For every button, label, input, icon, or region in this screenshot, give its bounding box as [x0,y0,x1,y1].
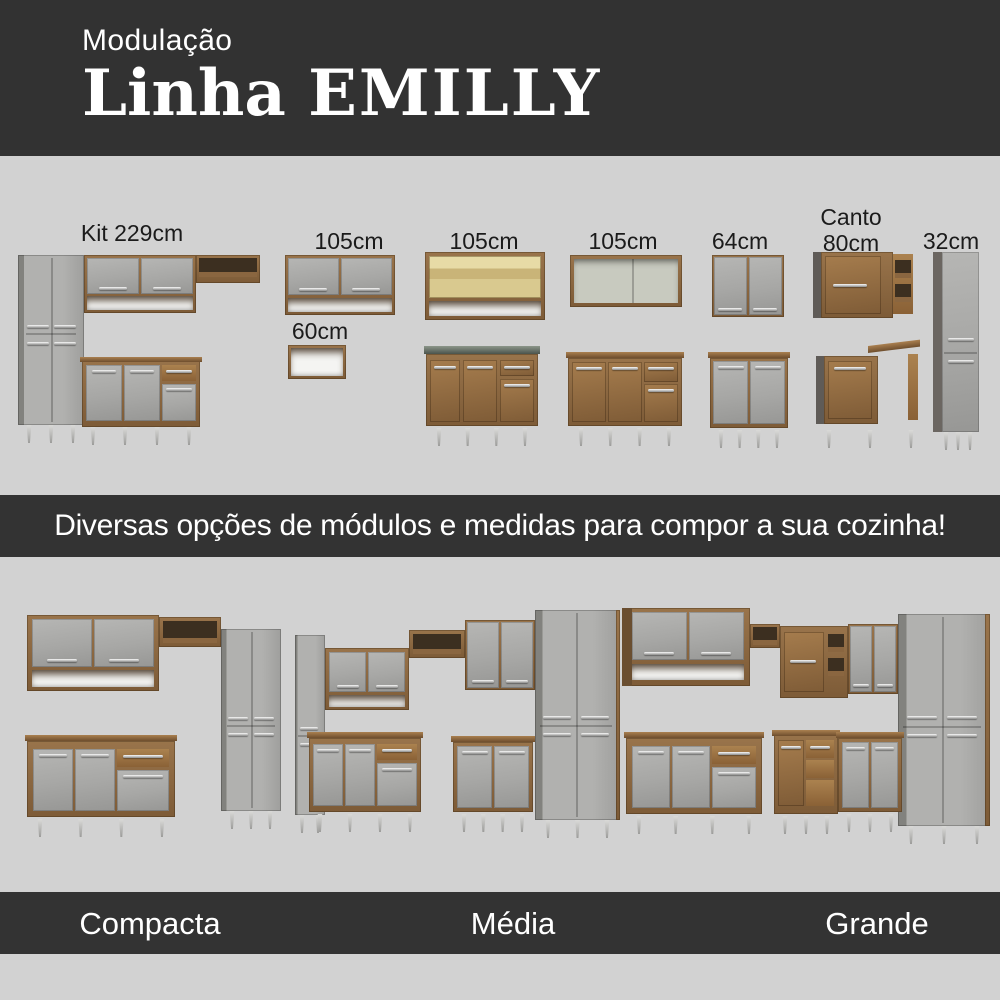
leg [578,428,584,446]
handle [753,308,777,311]
module-label-60: 60cm [292,318,348,344]
leg [159,819,165,837]
leg [908,826,914,844]
leg [465,428,471,446]
footer-banner: Compacta Média Grande [0,892,1000,954]
handle [166,388,192,391]
side-panel [985,614,990,826]
handle [166,370,192,373]
handle [254,733,274,736]
handle [228,717,248,720]
leg [782,816,788,834]
handle [153,287,181,290]
handle [130,370,154,373]
corner-base-cabinet [774,730,838,814]
leg [737,430,743,448]
leg [78,819,84,837]
door [749,257,782,315]
legs [908,826,980,844]
door-divider [251,632,253,808]
open-shelf [32,670,154,687]
leg [943,432,949,450]
tall-cabinet [221,629,281,811]
open-niche [163,621,217,643]
leg [407,814,413,832]
leg [500,814,506,832]
leg [48,425,54,443]
leg [888,814,894,832]
module-tall-32cm-image [933,252,979,432]
handle [907,734,937,737]
module-label-canto-80: Canto 80cm [820,204,881,256]
open-shelf [429,301,541,316]
leg [522,428,528,446]
handle [581,733,609,736]
tall-cabinet [898,614,990,826]
door [608,362,642,422]
module-corner-base-80cm-image [816,350,920,430]
leg [803,816,809,834]
wall-cabinet [84,255,196,313]
header-banner: Modulação Linha EMILLY [0,0,1000,156]
handle [467,366,493,369]
handle [810,746,830,749]
drawer [806,780,834,806]
handle [678,751,704,754]
side-panel [816,356,824,424]
module-label-64: 64cm [712,228,768,254]
door [430,360,460,422]
handle [718,772,750,775]
corner-shelf [196,255,260,283]
module-label-kit-229: Kit 229cm [81,220,183,246]
countertop [80,357,202,362]
handle [875,747,894,750]
handle [853,684,869,687]
leg [955,432,961,450]
page-title: Linha EMILLY [82,60,1000,128]
door-divider [903,726,981,728]
leg [636,816,642,834]
door [714,257,747,315]
module-label-105-1: 105cm [314,228,383,254]
handle [846,747,865,750]
handle [54,342,76,345]
cabinet-body [838,738,902,812]
door-divider [540,725,612,727]
side-panel [933,252,942,432]
module-base-64cm-image [710,352,788,428]
handle [877,684,893,687]
tagline-ribbon: Diversas opções de módulos e medidas par… [0,495,1000,557]
handle [576,367,602,370]
handle [504,366,530,369]
leg [229,811,235,829]
leg [673,816,679,834]
modules-section: Kit 229cm 105cm 60cm 105cm 105cm 64cm Ca… [0,156,1000,495]
handle [123,775,163,778]
open-niche [753,627,777,645]
leg [908,430,914,448]
kitchen-label-media: Média [471,906,555,942]
handle [27,342,49,345]
leg [70,425,76,443]
door [778,740,804,806]
glass-doors [429,256,541,298]
handle [947,716,977,719]
handle [47,659,77,662]
handle [123,755,163,758]
door [33,749,73,811]
handle [92,370,116,373]
kitchens-section [0,557,1000,892]
sink-countertop [424,346,540,354]
drawer [162,365,196,381]
leg [317,814,323,832]
door-divider [26,333,76,335]
open-niche [895,284,911,302]
legs [436,428,528,446]
module-sink-105cm-image [426,346,538,426]
leg [37,819,43,837]
door [345,744,375,806]
open-niche [413,634,461,654]
module-niche-60cm-image [288,345,346,379]
cabinet-body [821,252,893,318]
legs [90,427,192,445]
drawer [806,760,834,778]
handle [228,733,248,736]
countertop [772,730,840,736]
door [850,626,872,692]
kitchen-grande-image [622,600,997,865]
module-wall-105cm-image [285,255,395,315]
leg [299,815,305,833]
handle [834,367,866,370]
legs [782,816,830,834]
drawer [712,746,756,764]
bridge-shelf [750,624,780,648]
handle [648,389,674,392]
handle [254,717,274,720]
door [874,626,896,692]
handle [648,367,674,370]
leg [90,427,96,445]
handle [472,680,494,683]
legs [846,814,894,832]
corner-countertop [868,340,920,353]
wall-cabinet-2 [848,624,898,694]
handle [81,754,109,757]
legs [229,811,273,829]
handle [382,768,412,771]
cabinet-body [568,358,682,426]
open-niche [291,348,343,376]
corner-wall-cabinet [780,626,848,698]
legs [943,432,973,450]
module-label-32: 32cm [923,228,979,254]
handle [39,754,67,757]
handle [434,366,456,369]
door [672,746,710,808]
kitchen-label-grande: Grande [825,906,928,942]
leg [718,430,724,448]
drawer [644,362,678,382]
leg [118,819,124,837]
base-cabinet [309,732,421,812]
title-model-word: EMILLY [308,56,601,131]
door [842,742,869,808]
open-shelf [288,298,392,312]
side-panel [813,252,821,318]
base-cabinet-2 [838,732,902,812]
door-divider [227,725,275,727]
open-niche [828,658,844,676]
door [467,622,499,688]
bridge-shelf [409,630,465,658]
leg [604,820,610,838]
tagline-text: Diversas opções de módulos e medidas par… [54,509,946,543]
module-corner-wall-80cm-image [813,252,913,318]
side-shelf [893,254,913,314]
handle [701,652,731,655]
open-niche [199,258,257,277]
door [86,365,122,421]
legs [26,425,76,443]
handle [644,652,674,655]
legs [578,428,672,446]
legs [317,814,413,832]
leg [967,432,973,450]
leg [824,816,830,834]
module-open-105cm-image [570,255,682,307]
legs [37,819,165,837]
leg [867,814,873,832]
base-cabinet [82,357,200,427]
base-cabinet [626,732,762,814]
leg [186,427,192,445]
door [572,362,606,422]
leg [267,811,273,829]
leg [755,430,761,448]
door [124,365,160,421]
door [942,252,979,432]
leg [154,427,160,445]
handle [337,685,359,688]
open-niche [895,260,911,278]
handle [947,734,977,737]
leg [846,814,852,832]
door [871,742,898,808]
kitchen-label-compacta: Compacta [79,906,220,942]
leg [575,820,581,838]
handle [543,733,571,736]
bridge-shelf [159,617,221,647]
leg [746,816,752,834]
open-shelf [632,664,744,680]
tall-cabinet [18,255,84,425]
leg [774,430,780,448]
door [750,361,785,424]
handle [349,749,371,752]
leg [974,826,980,844]
open-niche [828,634,844,652]
handle [300,727,318,730]
leg [867,430,873,448]
door-divider [576,613,578,817]
leg [26,425,32,443]
base-cabinet [27,735,175,817]
legs [461,814,525,832]
module-kit-229cm-image [18,255,260,445]
handle [581,716,609,719]
module-label-105-3: 105cm [588,228,657,254]
cabinet-body [453,742,533,812]
cabinet-body [626,738,762,814]
legs [545,820,610,838]
leg [941,826,947,844]
wall-cabinet [27,615,159,691]
leg [637,428,643,446]
handle [382,749,412,752]
cabinet-body [27,741,175,817]
handle [907,716,937,719]
door [494,746,529,808]
handle [543,716,571,719]
tall-cabinet [535,610,620,820]
door [632,746,670,808]
title-line-word: Linha [82,56,286,131]
module-wall-64cm-image [712,255,784,317]
wall-cabinet-2 [465,620,535,690]
handle [612,367,638,370]
door [501,622,533,688]
handle [781,746,801,749]
legs [636,816,752,834]
drawer [117,749,169,767]
handle [790,660,816,663]
legs [718,430,780,448]
shelf-divider [632,259,634,303]
handle [352,288,380,291]
handle [99,287,127,290]
door-divider [944,352,977,354]
drawer [806,740,834,758]
base-cabinet-2 [453,736,533,812]
handle [948,360,974,363]
leg [826,430,832,448]
collection-eyebrow: Modulação [82,24,1000,58]
handle [109,659,139,662]
legs [826,430,914,448]
leg [436,428,442,446]
module-base-105cm-image [568,352,682,426]
module-label-105-2: 105cm [449,228,518,254]
handle [638,751,664,754]
handle [299,288,327,291]
handle [718,752,750,755]
leg [493,428,499,446]
wall-cabinet [622,608,750,686]
cabinet-body [824,356,878,424]
leg [519,814,525,832]
leg [347,814,353,832]
kitchen-compacta-image [25,605,287,863]
door [463,360,497,422]
handle [54,325,76,328]
wall-cabinet [325,648,409,710]
cabinet-body [426,354,538,426]
handle [718,308,742,311]
cabinet-body [309,738,421,812]
side-panel [622,608,632,686]
leg [666,428,672,446]
leg [545,820,551,838]
module-glass-105cm-image [425,252,545,320]
handle [462,751,488,754]
cabinet-body [710,358,788,428]
kitchen-media-image [295,600,620,865]
leg [709,816,715,834]
open-shelf [329,695,405,707]
handle [376,685,398,688]
handle [27,325,49,328]
handle [948,338,974,341]
leg [461,814,467,832]
handle [317,749,339,752]
support-panel [908,354,918,420]
door [457,746,492,808]
drawer [377,744,417,760]
handle [833,284,867,287]
leg [377,814,383,832]
handle [755,366,781,369]
leg [122,427,128,445]
open-shelf [87,296,193,310]
leg [480,814,486,832]
leg [607,428,613,446]
door-divider [51,258,53,422]
door-divider [942,617,944,823]
handle [506,680,528,683]
side-panel [616,610,620,820]
handle [504,384,530,387]
handle [718,366,744,369]
open-interior [574,259,678,303]
door [713,361,748,424]
door [75,749,115,811]
leg [248,811,254,829]
door [313,744,343,806]
handle [499,751,525,754]
